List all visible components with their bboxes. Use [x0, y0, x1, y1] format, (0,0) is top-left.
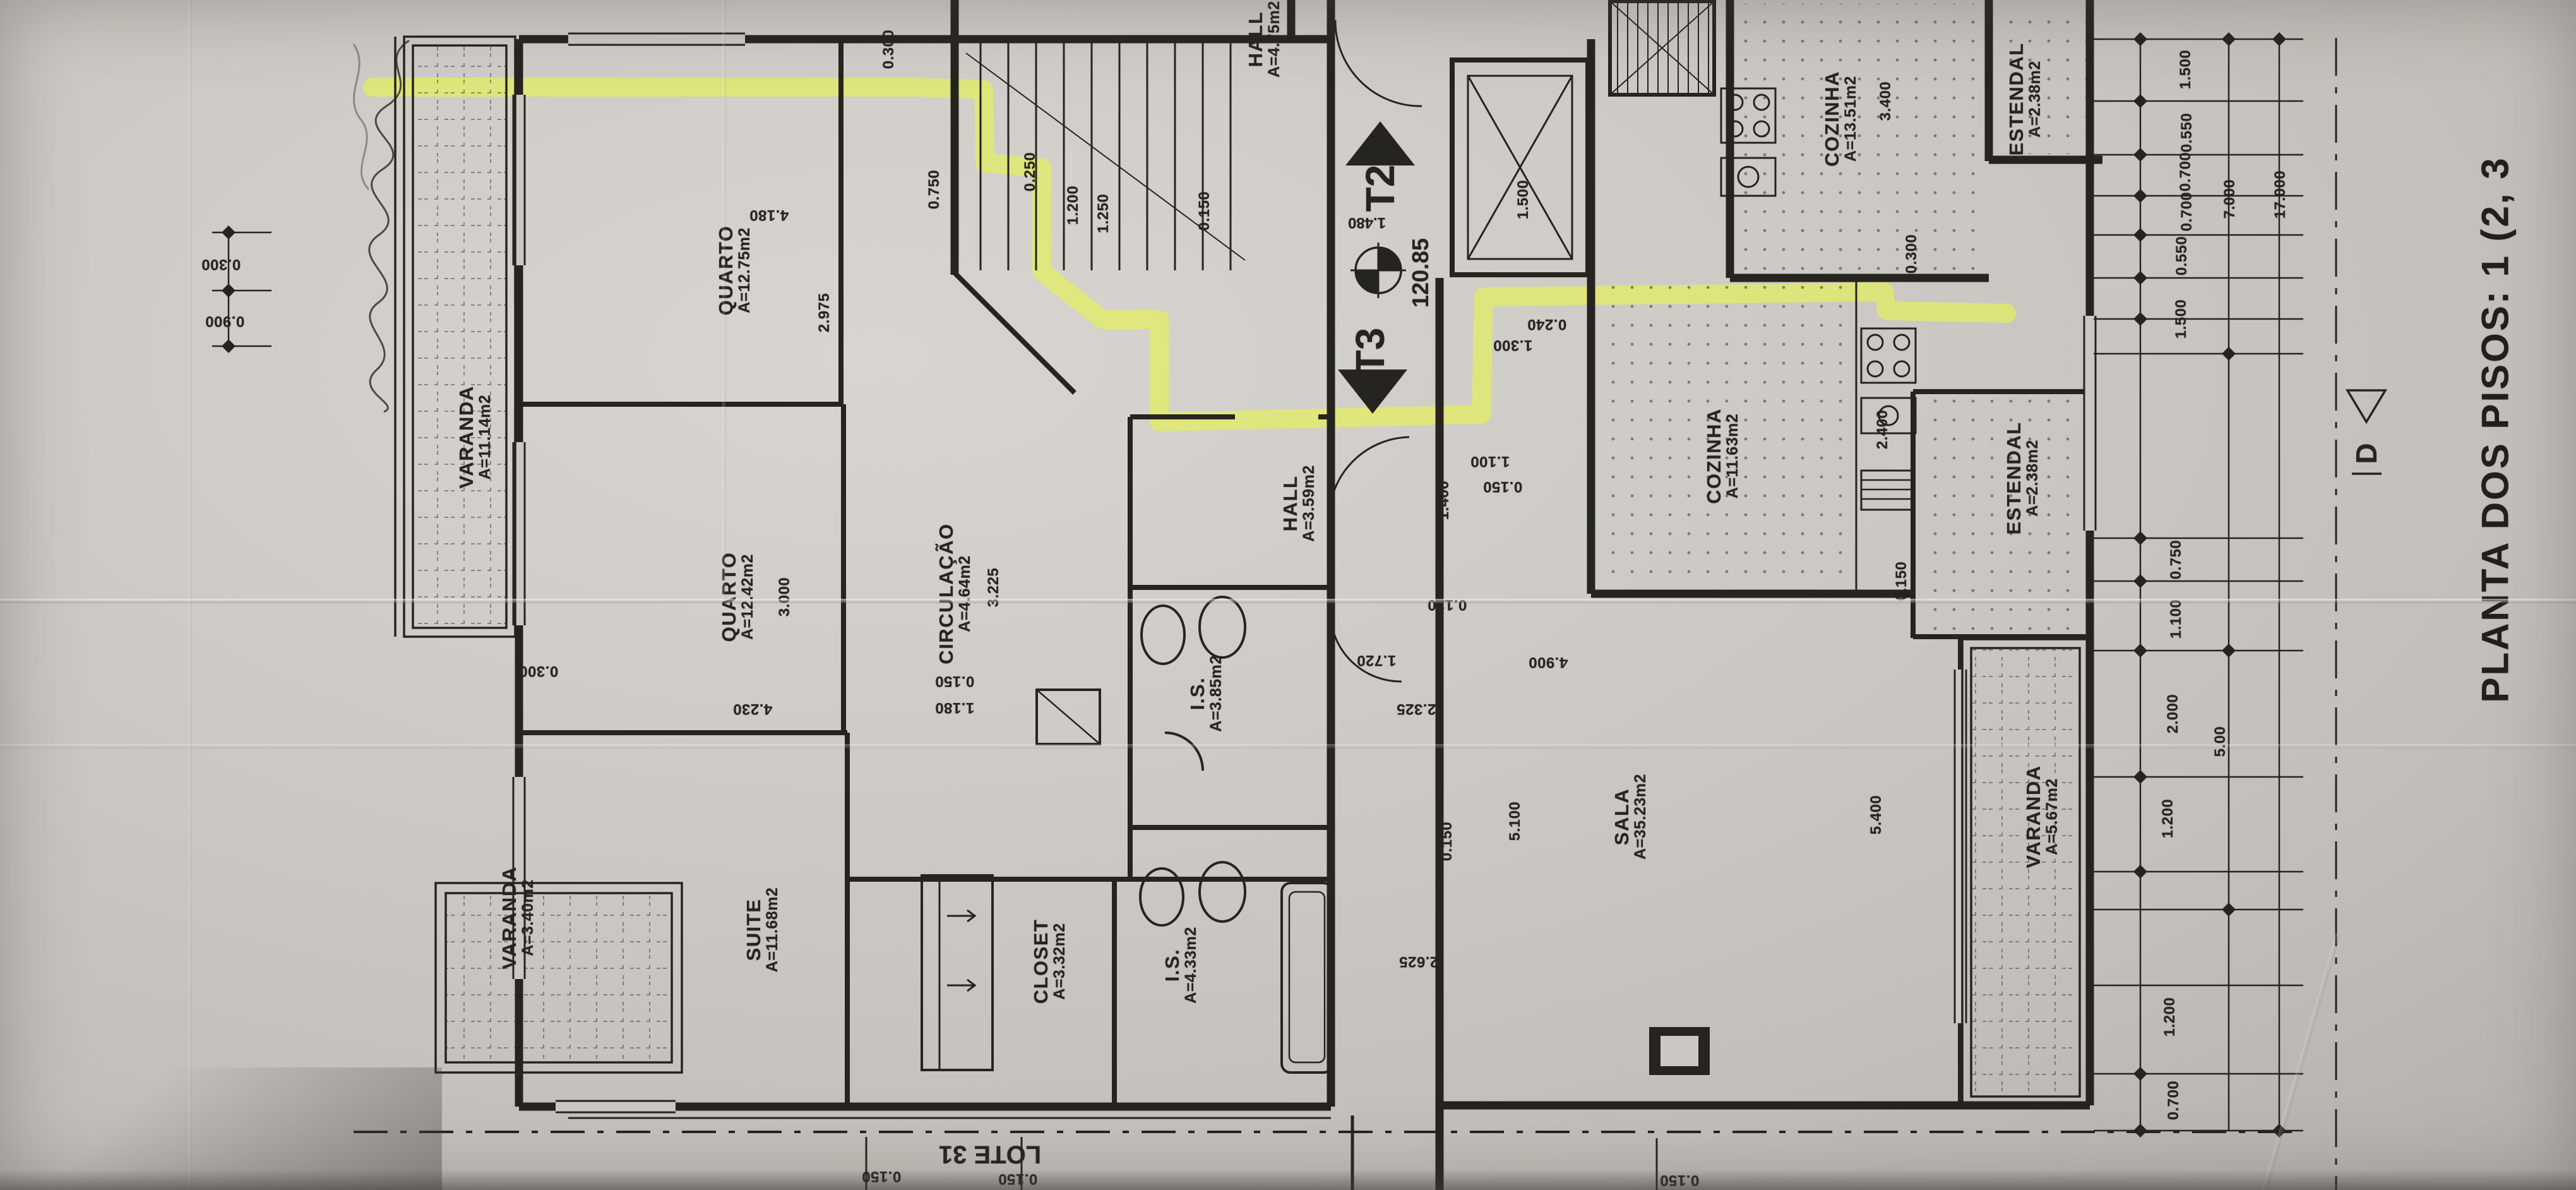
- room-area: A=12.42m2: [739, 552, 756, 642]
- room-name: I.S.: [1162, 927, 1183, 1003]
- room-area: A=3.32m2: [1051, 919, 1068, 1004]
- dimension-label-40: 0.700: [2165, 1081, 2183, 1121]
- room-name: I.S.: [1188, 655, 1208, 731]
- room-label-hall-5: HALLA=4.75m2: [1246, 1, 1282, 77]
- room-label-estendal-14: ESTENDALA=2.38m2: [2004, 421, 2041, 534]
- dimension-label-17: 1.500: [1515, 180, 1532, 220]
- dimension-label-3: 3.000: [776, 577, 794, 617]
- dimension-label-5: 3.225: [985, 568, 1003, 608]
- room-label-circulao-3: CIRCULAÇÃOA=4.64m2: [936, 523, 973, 664]
- room-area: A=4.75m2: [1266, 1, 1282, 77]
- dimension-label-20: 1.100: [1470, 452, 1510, 470]
- room-label-estendal-13: ESTENDALA=2.38m2: [2007, 42, 2043, 155]
- room-area: A=2.38m2: [2024, 421, 2041, 534]
- page-title: PLANTA DOS PISOS: 1 (2, 3: [2474, 156, 2517, 702]
- dimension-label-38: 1.200: [2159, 799, 2177, 839]
- marker-d: D: [2349, 443, 2383, 464]
- room-area: A=3.85m2: [1208, 655, 1224, 731]
- marker-lote-31: LOTE 31: [939, 1140, 1041, 1169]
- marker-120-85: 120.85: [1407, 238, 1434, 308]
- room-label-hall-4: HALLA=3.59m2: [1280, 465, 1317, 541]
- dimension-label-21: 0.150: [1483, 478, 1523, 495]
- dimension-label-11: 2.325: [1397, 700, 1436, 718]
- dimension-label-33: 17.000: [2272, 171, 2289, 219]
- room-name: QUARTO: [719, 552, 739, 642]
- dimension-label-50: 1.250: [1095, 194, 1112, 234]
- room-name: HALL: [1280, 465, 1301, 541]
- dimension-label-24: 3.400: [1877, 81, 1895, 121]
- room-label-cozinha-11: COZINHAA=11.63m2: [1704, 408, 1741, 504]
- dimension-label-25: 0.300: [1903, 234, 1921, 274]
- room-name: COZINHA: [1822, 71, 1842, 167]
- marker-1-480: 1.480: [1348, 213, 1386, 231]
- dimension-label-22: 2.400: [1874, 410, 1892, 450]
- room-area: A=12.75m2: [736, 225, 753, 316]
- room-area: A=11.68m2: [764, 887, 780, 972]
- dimension-label-2: 2.975: [816, 293, 833, 333]
- room-label-cozinha-12: COZINHAA=13.51m2: [1822, 71, 1859, 167]
- dimension-label-51: 0.150: [1196, 191, 1213, 231]
- dimension-label-47: 0.750: [926, 170, 943, 210]
- dimension-label-41: 0.300: [201, 255, 241, 273]
- dimension-label-37: 5.00: [2212, 726, 2229, 757]
- dimension-label-15: 4.900: [1529, 653, 1568, 671]
- dimension-label-31: 1.500: [2173, 299, 2190, 339]
- room-area: A=5.67m2: [2044, 765, 2060, 868]
- room-label-quarto-2: QUARTOA=12.42m2: [719, 552, 756, 642]
- dimension-label-43: 0.300: [519, 662, 559, 680]
- dimension-label-4: 4.230: [733, 700, 773, 718]
- room-label-is-9: I.S.A=3.85m2: [1188, 655, 1224, 731]
- dimension-label-35: 1.100: [2168, 599, 2185, 639]
- dimension-label-34: 0.750: [2168, 540, 2185, 580]
- dimension-label-14: 0.150: [1438, 822, 1456, 862]
- dimension-label-16: 5.400: [1868, 795, 1885, 835]
- room-name: VARANDA: [499, 866, 520, 969]
- dimension-label-26: 1.500: [2177, 50, 2195, 90]
- room-area: A=13.51m2: [1842, 71, 1859, 167]
- dimension-label-36: 2.000: [2164, 694, 2182, 734]
- room-area: A=4.64m2: [957, 523, 973, 664]
- dimension-label-19: 0.240: [1527, 315, 1567, 333]
- room-label-suite-6: SUITEA=11.68m2: [744, 887, 780, 972]
- dimension-label-49: 1.200: [1064, 186, 1082, 225]
- room-label-quarto-1: QUARTOA=12.75m2: [716, 225, 753, 316]
- dimension-label-18: 1.300: [1493, 336, 1533, 354]
- dimension-label-29: 0.700: [2178, 192, 2196, 232]
- dimension-label-23: 0.150: [1893, 562, 1911, 601]
- room-name: VARANDA: [456, 385, 477, 488]
- room-area: A=2.38m2: [2027, 42, 2043, 155]
- room-area: A=11.14m2: [477, 385, 493, 488]
- dimension-label-13: 5.100: [1506, 802, 1524, 841]
- room-label-varanda-0: VARANDAA=11.14m2: [456, 385, 493, 488]
- room-label-varanda-15: VARANDAA=5.67m2: [2024, 765, 2060, 868]
- dimension-label-6: 0.150: [935, 672, 975, 690]
- dimension-label-30: 0.550: [2173, 236, 2191, 276]
- room-area: A=3.59m2: [1301, 465, 1317, 541]
- dimension-label-7: 1.180: [935, 699, 975, 716]
- dimension-label-10: 0.120: [1428, 596, 1467, 613]
- dimension-label-12: 2.625: [1399, 953, 1439, 970]
- dimension-label-28: 0.700: [2177, 152, 2195, 192]
- dimension-label-27: 0.550: [2178, 113, 2196, 153]
- dimension-label-42: 0.900: [205, 312, 245, 330]
- room-name: QUARTO: [716, 225, 736, 316]
- room-label-closet-7: CLOSETA=3.32m2: [1031, 919, 1068, 1004]
- dimension-label-39: 1.200: [2161, 997, 2179, 1037]
- room-area: A=35.23m2: [1632, 774, 1649, 860]
- room-area: A=4.33m2: [1183, 927, 1199, 1003]
- room-name: SUITE: [744, 887, 764, 972]
- room-name: HALL: [1246, 1, 1266, 77]
- room-name: CIRCULAÇÃO: [936, 523, 957, 664]
- dimension-label-9: 1.720: [1357, 651, 1397, 669]
- room-name: COZINHA: [1704, 408, 1724, 504]
- room-label-varanda-16: VARANDAA=3.40m2: [499, 866, 536, 969]
- floorplan-photo: PLANTA DOS PISOS: 1 (2, 3 VARANDAA=11.14…: [0, 0, 2576, 1190]
- room-name: SALA: [1612, 774, 1632, 860]
- dimension-label-0: 0.300: [880, 30, 898, 69]
- room-name: VARANDA: [2024, 765, 2044, 868]
- room-name: ESTENDAL: [2004, 421, 2024, 534]
- room-label-sala-10: SALAA=35.23m2: [1612, 774, 1649, 860]
- room-label-is-8: I.S.A=4.33m2: [1162, 927, 1199, 1003]
- dimension-label-48: 0.250: [1022, 152, 1039, 192]
- dimension-label-8: 1.400: [1435, 481, 1453, 520]
- paper-shadow: [0, 1170, 2576, 1190]
- marker-t2: T2: [1357, 165, 1404, 212]
- room-area: A=3.40m2: [520, 866, 536, 969]
- marker-t3: T3: [1347, 328, 1393, 375]
- labels-layer: PLANTA DOS PISOS: 1 (2, 3 VARANDAA=11.14…: [0, 0, 2576, 1190]
- room-name: CLOSET: [1031, 919, 1051, 1004]
- room-area: A=11.63m2: [1724, 408, 1741, 504]
- room-name: ESTENDAL: [2007, 42, 2027, 155]
- dimension-label-32: 7.000: [2221, 179, 2239, 219]
- dimension-label-1: 4.180: [749, 206, 789, 224]
